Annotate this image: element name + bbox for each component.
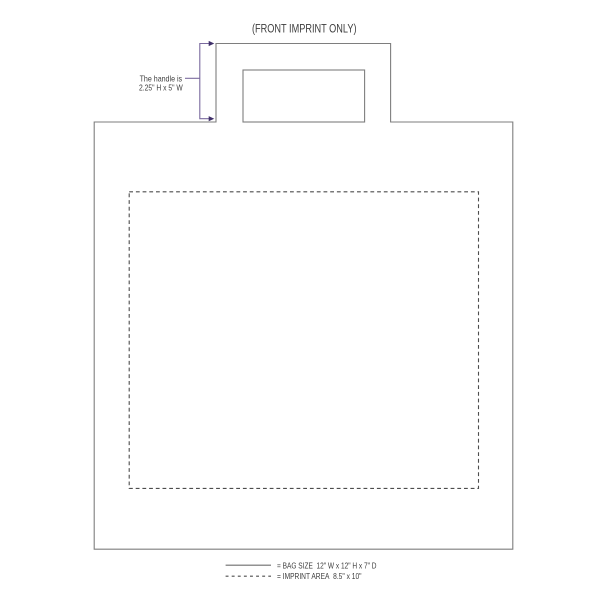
svg-text:= BAG SIZE 12" W x 12" H x 7": = BAG SIZE 12" W x 12" H x 7" D: [277, 561, 377, 570]
svg-text:2.25" H x 5" W: 2.25" H x 5" W: [139, 83, 183, 93]
svg-text:(FRONT IMPRINT ONLY): (FRONT IMPRINT ONLY): [252, 23, 357, 35]
svg-text:= IMPRINT AREA 8.5" x 10": = IMPRINT AREA 8.5" x 10": [277, 572, 362, 581]
